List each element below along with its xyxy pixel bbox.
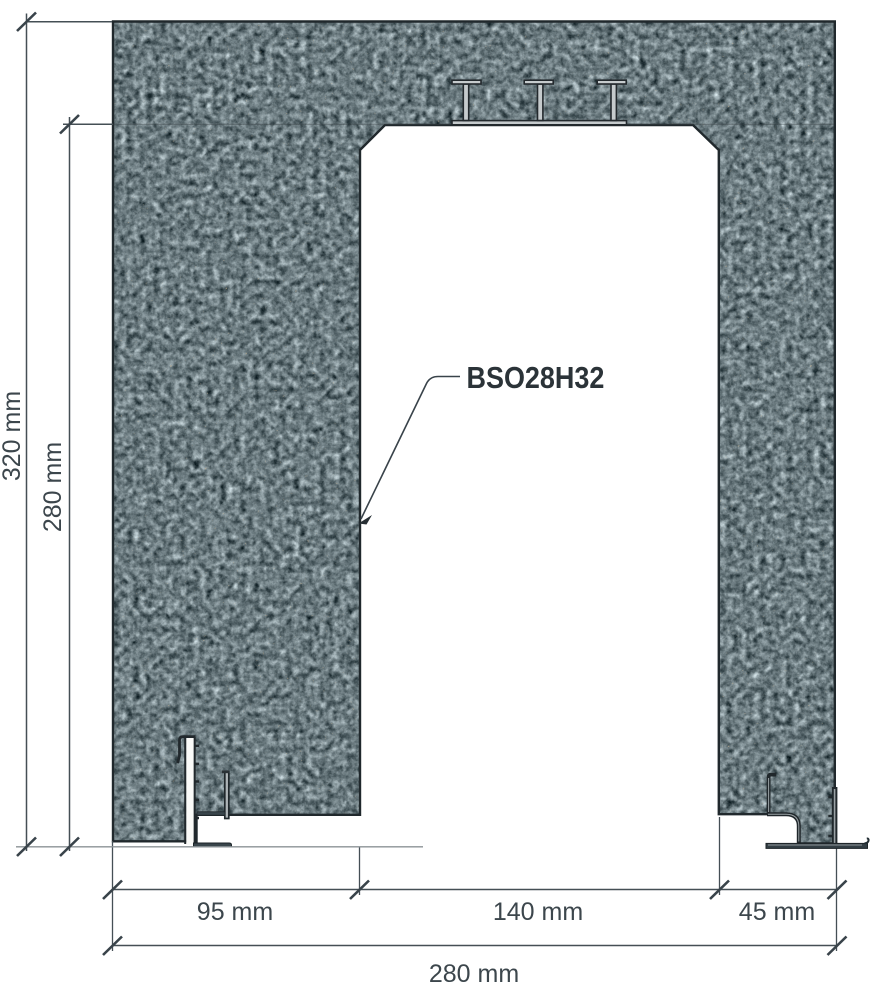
svg-text:95 mm: 95 mm xyxy=(197,898,273,926)
svg-text:140 mm: 140 mm xyxy=(493,898,583,926)
svg-text:280 mm: 280 mm xyxy=(39,442,67,532)
svg-text:BSO28H32: BSO28H32 xyxy=(467,361,605,395)
svg-text:45 mm: 45 mm xyxy=(739,898,815,926)
svg-text:320 mm: 320 mm xyxy=(0,391,26,481)
svg-text:280 mm: 280 mm xyxy=(429,960,519,988)
